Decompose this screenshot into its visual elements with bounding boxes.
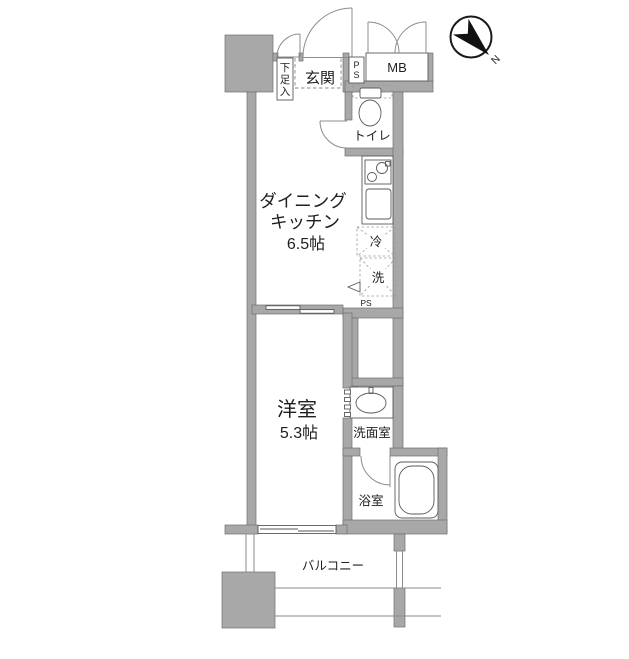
- mb-door-right-arc: [395, 22, 426, 53]
- washer-label: 洗: [372, 271, 385, 285]
- shoe-door-arc: [277, 34, 300, 57]
- washroom-top-wall: [348, 378, 403, 386]
- folding-door-mark-1: [345, 390, 351, 394]
- western-room-size-label: 5.3帖: [280, 424, 318, 442]
- balcony-left-thin-wall: [246, 534, 254, 572]
- toilet-tank: [360, 88, 381, 98]
- washroom-right-wall: [393, 386, 403, 452]
- shoe-storage-label-char3: 入: [280, 86, 291, 98]
- toilet-left-wall: [345, 92, 352, 120]
- western-room-right-wall-upper: [343, 313, 352, 388]
- pillar-top-left: [225, 35, 273, 92]
- washer-corner-marker: [348, 282, 360, 292]
- balcony-label: バルコニー: [302, 559, 364, 573]
- ps-top-label-char1: P: [353, 60, 359, 70]
- western-room-right-wall-lower: [343, 418, 352, 525]
- toilet-bowl: [359, 100, 381, 126]
- ps-top-label-char2: S: [353, 70, 359, 80]
- north-arrow-icon: [453, 19, 489, 55]
- dining-kitchen-size-label: 6.5帖: [287, 235, 325, 253]
- compass: N: [451, 17, 502, 66]
- sliding-door-panel-2: [300, 310, 334, 314]
- pillar-bottom-left: [222, 572, 275, 628]
- bathtub-outer: [395, 462, 438, 518]
- balcony-divider-thin: [397, 551, 403, 588]
- walls: [222, 35, 447, 628]
- balcony-divider-post: [394, 588, 405, 627]
- washroom-label: 洗面室: [353, 425, 391, 440]
- shoe-storage-label-char2: 足: [280, 74, 291, 86]
- floor-plan-svg: N 下 足 入 玄関 P S MB トイレ ダイニング キッチン 6.5帖 冷 …: [0, 0, 629, 659]
- right-outer-wall-kitchen: [393, 92, 403, 386]
- western-room-bottom-wall-right: [336, 525, 347, 534]
- sliding-door-panel-1: [266, 306, 300, 310]
- bath-top-wall-left: [343, 448, 360, 456]
- ps-bottom-label: PS: [360, 298, 372, 308]
- western-room-bottom-wall-left: [225, 525, 258, 534]
- entry-door-arc: [303, 8, 352, 57]
- entrance-label: 玄関: [305, 70, 335, 87]
- dining-kitchen-label-line2: キッチン: [270, 212, 340, 232]
- bathroom-label: 浴室: [358, 493, 383, 508]
- floor-plan-canvas: N 下 足 入 玄関 P S MB トイレ ダイニング キッチン 6.5帖 冷 …: [0, 0, 629, 659]
- meter-box-label: MB: [387, 60, 407, 75]
- bath-door-arc: [361, 456, 390, 485]
- compass-north-label: N: [488, 52, 502, 66]
- folding-door-mark-2: [345, 398, 351, 402]
- shoe-storage-label-char1: 下: [280, 62, 291, 74]
- western-room-label: 洋室: [277, 398, 317, 421]
- refrigerator-label: 冷: [370, 235, 383, 249]
- folding-door-mark-3: [345, 405, 351, 409]
- washroom: [345, 387, 394, 418]
- mb-door-left-arc: [368, 22, 399, 53]
- toilet-door-arc: [320, 121, 347, 148]
- kitchen-sink: [366, 189, 391, 219]
- bath-bottom-outer-wall: [343, 520, 447, 534]
- balcony-divider-stub: [394, 534, 405, 551]
- balcony-area: [275, 588, 441, 616]
- folding-door-mark-4: [345, 413, 351, 417]
- balcony-window: [258, 526, 336, 534]
- dining-kitchen-label-line1: ダイニング: [259, 191, 347, 211]
- bathroom: [361, 456, 438, 518]
- toilet-label: トイレ: [353, 129, 391, 143]
